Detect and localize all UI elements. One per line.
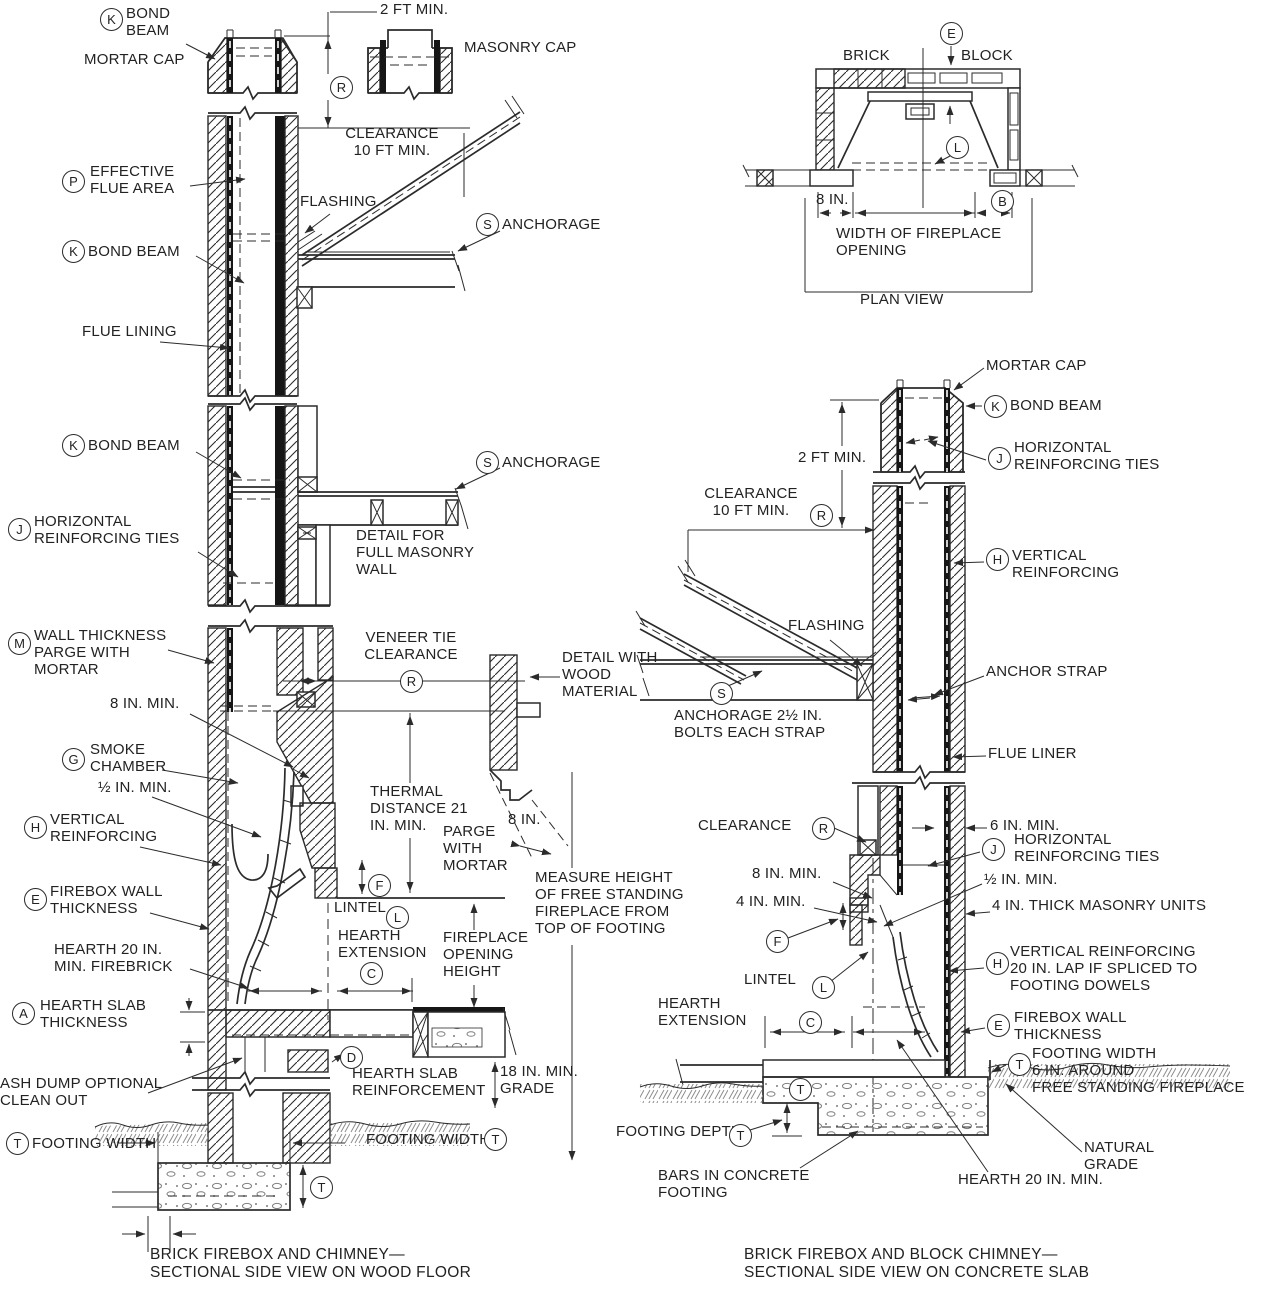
label-footing-width-6in: FOOTING WIDTH 6 IN. AROUND FREE STANDING… <box>1032 1046 1245 1097</box>
callout-l-lintel-left: L <box>386 906 409 929</box>
callout-c-hearth-ext-right: C <box>799 1011 822 1034</box>
label-clearance-10ft-left: CLEARANCE 10 FT MIN. <box>334 126 450 160</box>
label-plan-view-title: PLAN VIEW <box>860 292 944 309</box>
label-natural-grade: NATURAL GRADE <box>1084 1140 1154 1174</box>
callout-s-anchorage-1: S <box>476 213 499 236</box>
callout-a-hearth-slab: A <box>12 1002 35 1025</box>
callout-h-vert-right-1: H <box>986 548 1009 571</box>
label-horiz-ties-right-2: HORIZONTAL REINFORCING TIES <box>1014 832 1159 866</box>
callout-j-ties-right-2: J <box>982 838 1005 861</box>
callout-h-vert-reinf: H <box>24 816 47 839</box>
label-brick: BRICK <box>843 48 890 65</box>
label-bond-beam-cap: BOND BEAM <box>126 6 170 40</box>
label-wall-thickness: WALL THICKNESS PARGE WITH MORTAR <box>34 628 166 679</box>
label-detail-wood-material: DETAIL WITH WOOD MATERIAL <box>562 650 658 701</box>
callout-t-footing-depth-right: T <box>729 1124 752 1147</box>
label-footing-width-right: FOOTING WIDTH <box>366 1132 490 1149</box>
label-bond-beam-2: BOND BEAM <box>88 244 180 261</box>
label-flashing-left: FLASHING <box>300 194 377 211</box>
label-2ft-min-left: 2 FT MIN. <box>380 2 448 19</box>
callout-t-footing-w-right: T <box>484 1128 507 1151</box>
label-flashing-right: FLASHING <box>788 618 865 635</box>
label-full-masonry-wall: DETAIL FOR FULL MASONRY WALL <box>356 528 474 579</box>
label-ash-dump: ASH DUMP OPTIONAL CLEAN OUT <box>0 1076 162 1110</box>
label-mortar-cap-left: MORTAR CAP <box>84 52 185 69</box>
label-width-of-opening: WIDTH OF FIREPLACE OPENING <box>836 226 1001 260</box>
label-lintel-right: LINTEL <box>744 972 796 989</box>
callout-e-firebox-wall: E <box>24 888 47 911</box>
callout-h-vert-right-2: H <box>986 952 1009 975</box>
label-flue-lining: FLUE LINING <box>82 324 177 341</box>
label-half-in-min-left: ½ IN. MIN. <box>98 780 172 797</box>
callout-j-ties-right-1: J <box>988 447 1011 470</box>
label-block: BLOCK <box>961 48 1013 65</box>
callout-f-lintel-right: F <box>766 930 789 953</box>
label-bond-beam-right: BOND BEAM <box>1010 398 1102 415</box>
label-8in-min-left: 8 IN. MIN. <box>110 696 180 713</box>
callout-g-smoke-chamber: G <box>62 748 85 771</box>
label-anchorage-1: ANCHORAGE <box>502 217 600 234</box>
callout-j-ties-left: J <box>8 518 31 541</box>
callout-k-bond-beam-cap: K <box>100 8 123 31</box>
label-bars-in-footing: BARS IN CONCRETE FOOTING <box>658 1168 810 1202</box>
label-smoke-chamber: SMOKE CHAMBER <box>90 742 166 776</box>
callout-m-wall-thickness: M <box>8 632 31 655</box>
label-veneer-tie-clearance: VENEER TIE CLEARANCE <box>352 630 470 664</box>
callout-c-hearth-ext-left: C <box>360 962 383 985</box>
label-hearth-extension-right: HEARTH EXTENSION <box>658 996 746 1030</box>
label-4in-masonry-units: 4 IN. THICK MASONRY UNITS <box>992 898 1206 915</box>
label-bond-beam-3: BOND BEAM <box>88 438 180 455</box>
label-firebox-wall-right: FIREBOX WALL THICKNESS <box>1014 1010 1127 1044</box>
label-parge-with-mortar: PARGE WITH MORTAR <box>443 824 508 875</box>
callout-t-footing-w-left: T <box>6 1132 29 1155</box>
callout-r-veneer-tie: R <box>400 670 423 693</box>
label-hearth-extension-left: HEARTH EXTENSION <box>338 928 426 962</box>
label-anchor-strap: ANCHOR STRAP <box>986 664 1108 681</box>
callout-p-flue-area: P <box>62 170 85 193</box>
label-lintel-left: LINTEL <box>334 900 386 917</box>
callout-s-anchorage-right: S <box>710 682 733 705</box>
callout-l-plan: L <box>946 136 969 159</box>
callout-k-bond-beam-right: K <box>984 395 1007 418</box>
label-anchorage-bolts: ANCHORAGE 2½ IN. BOLTS EACH STRAP <box>674 708 825 742</box>
label-half-in-right: ½ IN. MIN. <box>984 872 1058 889</box>
label-8in-detail: 8 IN. <box>508 812 541 829</box>
label-footing-width-left: FOOTING WIDTH <box>32 1136 156 1153</box>
label-anchorage-2: ANCHORAGE <box>502 455 600 472</box>
callout-e-plan: E <box>940 22 963 45</box>
fireplace-construction-diagram: .ln{stroke:#2b2b2b;stroke-width:1.7;fill… <box>0 0 1273 1301</box>
label-clearance-10ft-right: CLEARANCE 10 FT MIN. <box>694 486 808 520</box>
label-8in-min-right: 8 IN. MIN. <box>752 866 822 883</box>
label-horiz-ties-right-1: HORIZONTAL REINFORCING TIES <box>1014 440 1159 474</box>
callout-r-2ft: R <box>330 76 353 99</box>
label-masonry-cap: MASONRY CAP <box>464 40 577 57</box>
label-hearth-slab-reinforcement: HEARTH SLAB REINFORCEMENT <box>352 1066 485 1100</box>
callout-r-clearance-right: R <box>810 504 833 527</box>
callout-b-plan: B <box>991 190 1014 213</box>
label-2ft-min-right: 2 FT MIN. <box>798 450 866 467</box>
label-measure-height: MEASURE HEIGHT OF FREE STANDING FIREPLAC… <box>535 870 684 938</box>
callout-s-anchorage-2: S <box>476 451 499 474</box>
label-effective-flue-area: EFFECTIVE FLUE AREA <box>90 164 174 198</box>
callout-e-firebox-right: E <box>987 1014 1010 1037</box>
label-footing-depth: FOOTING DEPTH <box>616 1124 742 1141</box>
callout-f-lintel-left: F <box>368 874 391 897</box>
callout-t-on-footing: T <box>789 1078 812 1101</box>
label-hearth-20in: HEARTH 20 IN. MIN. <box>958 1172 1103 1189</box>
caption-left-drawing: BRICK FIREBOX AND CHIMNEY— SECTIONAL SID… <box>150 1246 471 1281</box>
callout-l-lintel-right: L <box>812 976 835 999</box>
callout-k-bond-beam-3: K <box>62 434 85 457</box>
callout-r-clearance-right-2: R <box>812 817 835 840</box>
label-vertical-reinforcing-right-2: VERTICAL REINFORCING 20 IN. LAP IF SPLIC… <box>1010 944 1197 995</box>
label-vertical-reinforcing-right-1: VERTICAL REINFORCING <box>1012 548 1119 582</box>
label-8in-plan: 8 IN. <box>816 192 849 209</box>
label-hearth-firebrick: HEARTH 20 IN. MIN. FIREBRICK <box>54 942 173 976</box>
label-clearance-r: CLEARANCE <box>698 818 792 835</box>
label-4in-min-right: 4 IN. MIN. <box>736 894 806 911</box>
callout-t-footing-width-right: T <box>1008 1053 1031 1076</box>
caption-right-drawing: BRICK FIREBOX AND BLOCK CHIMNEY— SECTION… <box>744 1246 1089 1281</box>
label-horiz-ties-left: HORIZONTAL REINFORCING TIES <box>34 514 179 548</box>
label-fireplace-opening-height: FIREPLACE OPENING HEIGHT <box>443 930 528 981</box>
callout-t-footing-depth-left: T <box>310 1176 333 1199</box>
label-flue-liner: FLUE LINER <box>988 746 1077 763</box>
callout-d-hearth-reinf: D <box>340 1046 363 1069</box>
label-vertical-reinforcing-left: VERTICAL REINFORCING <box>50 812 157 846</box>
label-firebox-wall-left: FIREBOX WALL THICKNESS <box>50 884 163 918</box>
label-mortar-cap-right: MORTAR CAP <box>986 358 1087 375</box>
label-18in-grade: 18 IN. MIN. GRADE <box>500 1064 578 1098</box>
callout-k-bond-beam-2: K <box>62 240 85 263</box>
label-hearth-slab-thickness: HEARTH SLAB THICKNESS <box>40 998 146 1032</box>
